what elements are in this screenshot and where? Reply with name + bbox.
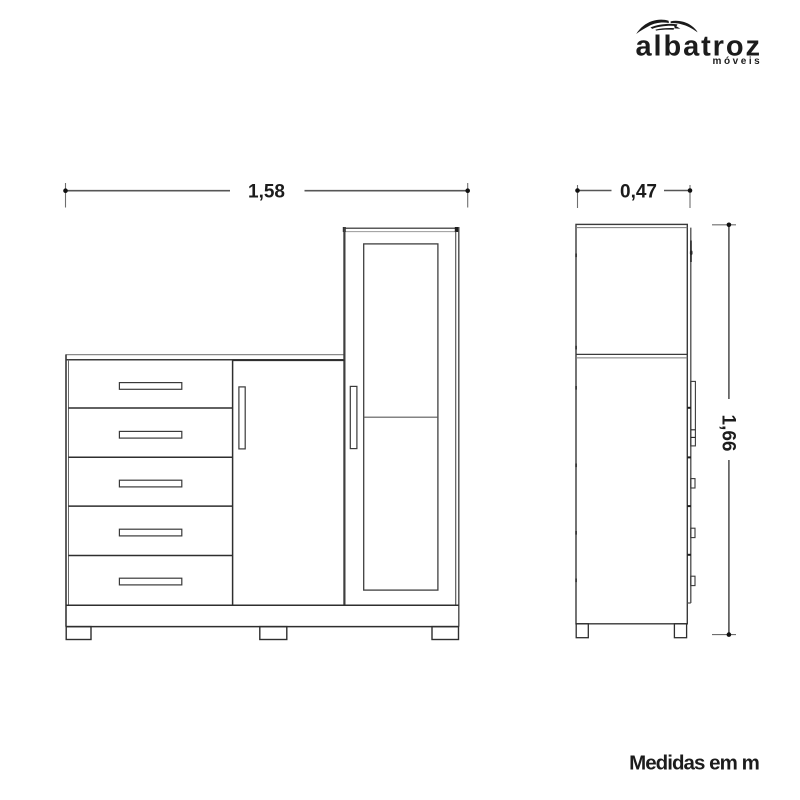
svg-text:móveis: móveis <box>713 56 763 67</box>
svg-text:Medidas em m: Medidas em m <box>629 752 759 775</box>
svg-text:1,58: 1,58 <box>248 182 285 203</box>
svg-text:0,47: 0,47 <box>620 181 657 202</box>
svg-text:1,66: 1,66 <box>718 415 739 452</box>
